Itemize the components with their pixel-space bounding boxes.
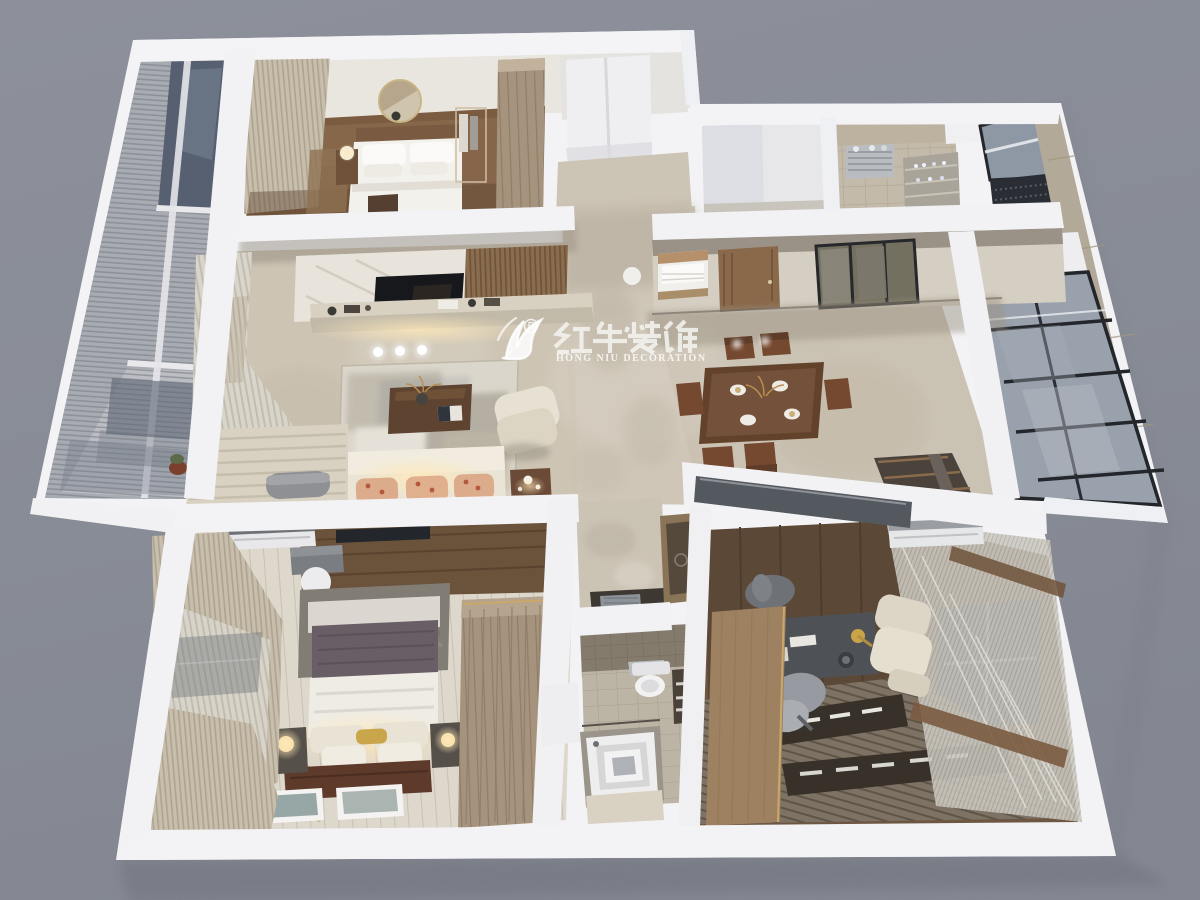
svg-text:HONG NIU DECORATION: HONG NIU DECORATION bbox=[556, 353, 707, 364]
